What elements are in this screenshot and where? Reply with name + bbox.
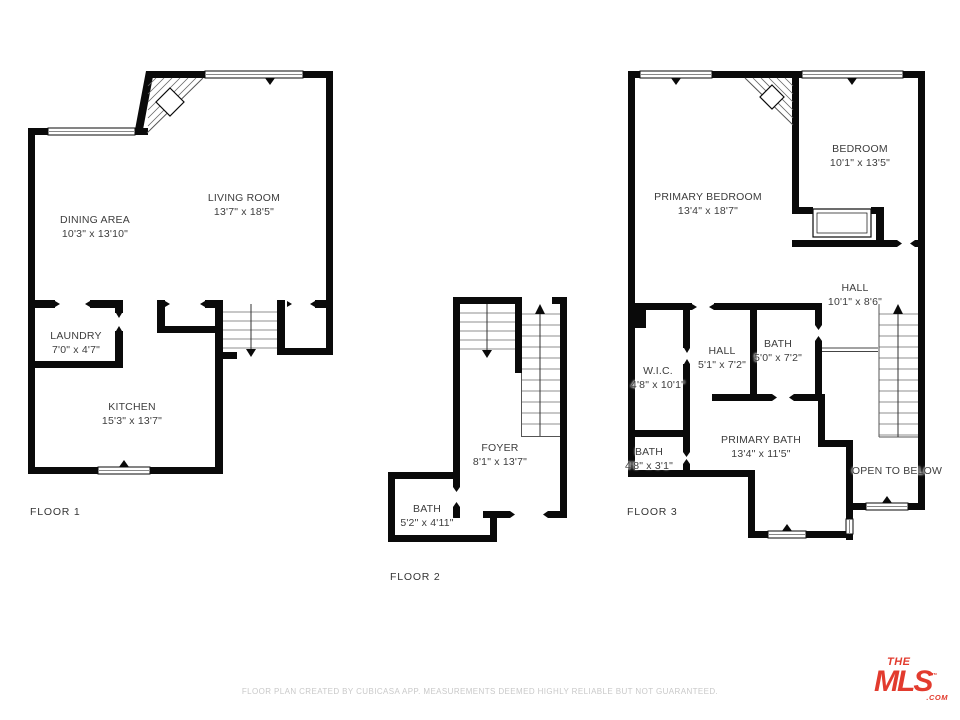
room-name: PRIMARY BEDROOM xyxy=(654,190,762,204)
room-label: BEDROOM10'1" x 13'5" xyxy=(830,142,890,170)
room-name: LIVING ROOM xyxy=(208,191,280,205)
floor-label: FLOOR 2 xyxy=(390,571,441,583)
disclaimer-text: FLOOR PLAN CREATED BY CUBICASA APP. MEAS… xyxy=(0,687,960,696)
room-label: LIVING ROOM13'7" x 18'5" xyxy=(208,191,280,219)
room-dimensions: 8'1" x 13'7" xyxy=(473,455,527,469)
room-name: PRIMARY BATH xyxy=(721,433,801,447)
room-name: BATH xyxy=(400,502,453,516)
room-name: DINING AREA xyxy=(60,213,130,227)
room-dimensions: 10'1" x 13'5" xyxy=(830,156,890,170)
room-label: BATH4'8" x 3'1" xyxy=(625,445,673,473)
room-label: KITCHEN15'3" x 13'7" xyxy=(102,400,162,428)
room-name: HALL xyxy=(828,281,882,295)
room-dimensions: 13'7" x 18'5" xyxy=(208,205,280,219)
room-name: LAUNDRY xyxy=(50,329,101,343)
room-dimensions: 5'1" x 7'2" xyxy=(698,358,746,372)
room-dimensions: 10'3" x 13'10" xyxy=(60,227,130,241)
room-dimensions: 4'8" x 10'1" xyxy=(631,378,685,392)
room-name: HALL xyxy=(698,344,746,358)
themls-logo: THE MLS™ .COM xyxy=(874,657,948,702)
room-label: LAUNDRY7'0" x 4'7" xyxy=(50,329,101,357)
room-labels-layer: FLOOR 1LIVING ROOM13'7" x 18'5"DINING AR… xyxy=(0,0,960,720)
floor-label: FLOOR 3 xyxy=(627,506,678,518)
room-label: PRIMARY BEDROOM13'4" x 18'7" xyxy=(654,190,762,218)
room-label: FOYER8'1" x 13'7" xyxy=(473,441,527,469)
room-name: OPEN TO BELOW xyxy=(852,464,942,478)
room-label: HALL5'1" x 7'2" xyxy=(698,344,746,372)
room-dimensions: 5'0" x 7'2" xyxy=(754,351,802,365)
room-dimensions: 15'3" x 13'7" xyxy=(102,414,162,428)
room-label: PRIMARY BATH13'4" x 11'5" xyxy=(721,433,801,461)
room-dimensions: 5'2" x 4'11" xyxy=(400,516,453,530)
room-name: BEDROOM xyxy=(830,142,890,156)
room-name: FOYER xyxy=(473,441,527,455)
room-dimensions: 4'8" x 3'1" xyxy=(625,459,673,473)
room-name: BATH xyxy=(625,445,673,459)
room-label: OPEN TO BELOW xyxy=(852,464,942,478)
floorplan-page: FLOOR 1LIVING ROOM13'7" x 18'5"DINING AR… xyxy=(0,0,960,720)
room-label: BATH5'2" x 4'11" xyxy=(400,502,453,530)
room-label: W.I.C.4'8" x 10'1" xyxy=(631,364,685,392)
room-name: KITCHEN xyxy=(102,400,162,414)
floor-label: FLOOR 1 xyxy=(30,506,81,518)
room-label: DINING AREA10'3" x 13'10" xyxy=(60,213,130,241)
room-dimensions: 13'4" x 18'7" xyxy=(654,204,762,218)
room-dimensions: 10'1" x 8'6" xyxy=(828,295,882,309)
room-label: HALL10'1" x 8'6" xyxy=(828,281,882,309)
room-label: BATH5'0" x 7'2" xyxy=(754,337,802,365)
room-name: BATH xyxy=(754,337,802,351)
room-name: W.I.C. xyxy=(631,364,685,378)
room-dimensions: 13'4" x 11'5" xyxy=(721,447,801,461)
trademark-symbol: ™ xyxy=(931,673,937,679)
room-dimensions: 7'0" x 4'7" xyxy=(50,343,101,357)
